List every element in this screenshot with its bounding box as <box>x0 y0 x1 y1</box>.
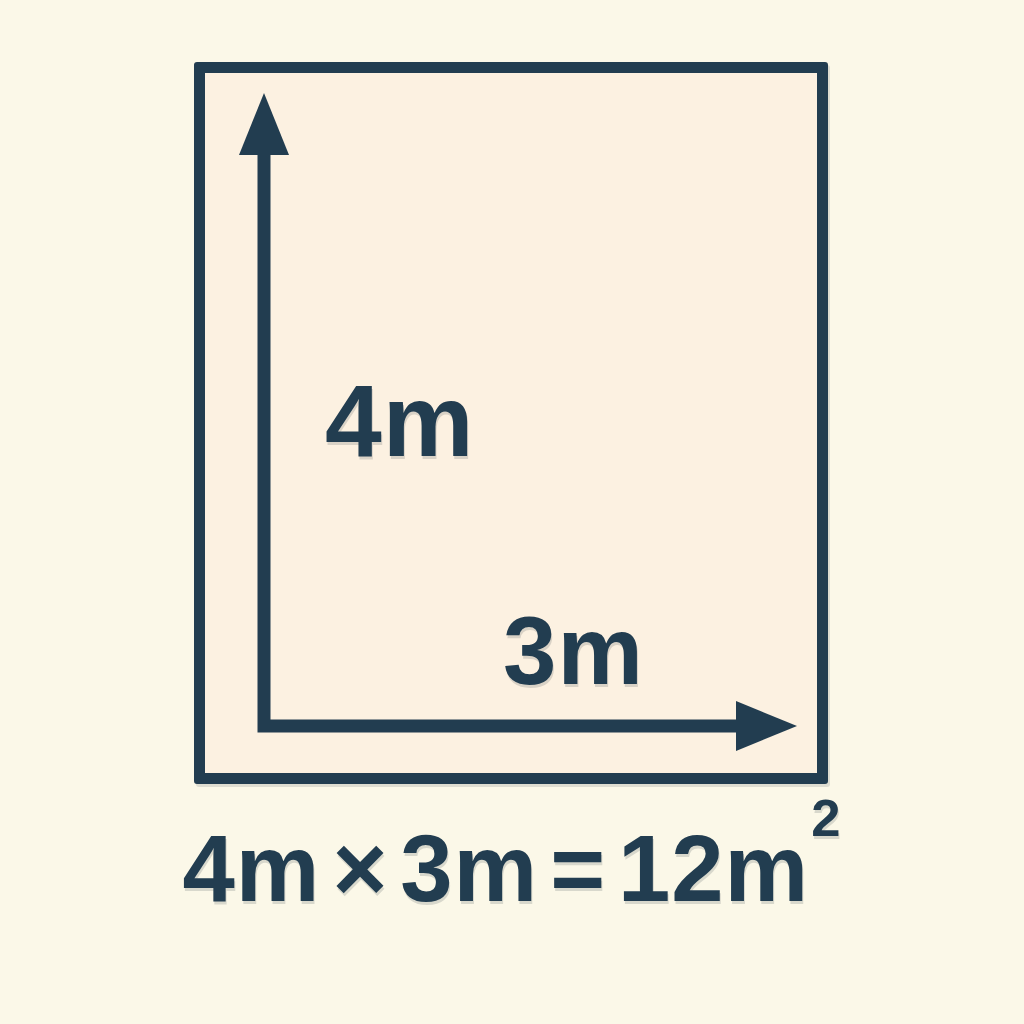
formula-result-exponent: 2 <box>811 788 841 847</box>
area-formula: 4m×3m=12m2 <box>0 822 1024 916</box>
formula-width-term: 3m <box>400 816 538 921</box>
formula-result-base: 12m <box>618 816 809 921</box>
width-dimension-label: 3m <box>503 603 644 699</box>
multiplication-sign: × <box>332 816 388 921</box>
equals-sign: = <box>550 816 606 921</box>
diagram-canvas: 4m 3m 4m×3m=12m2 <box>0 0 1024 1024</box>
formula-result: 12m2 <box>618 816 841 921</box>
formula-height-term: 4m <box>183 816 321 921</box>
height-dimension-label: 4m <box>325 370 474 472</box>
